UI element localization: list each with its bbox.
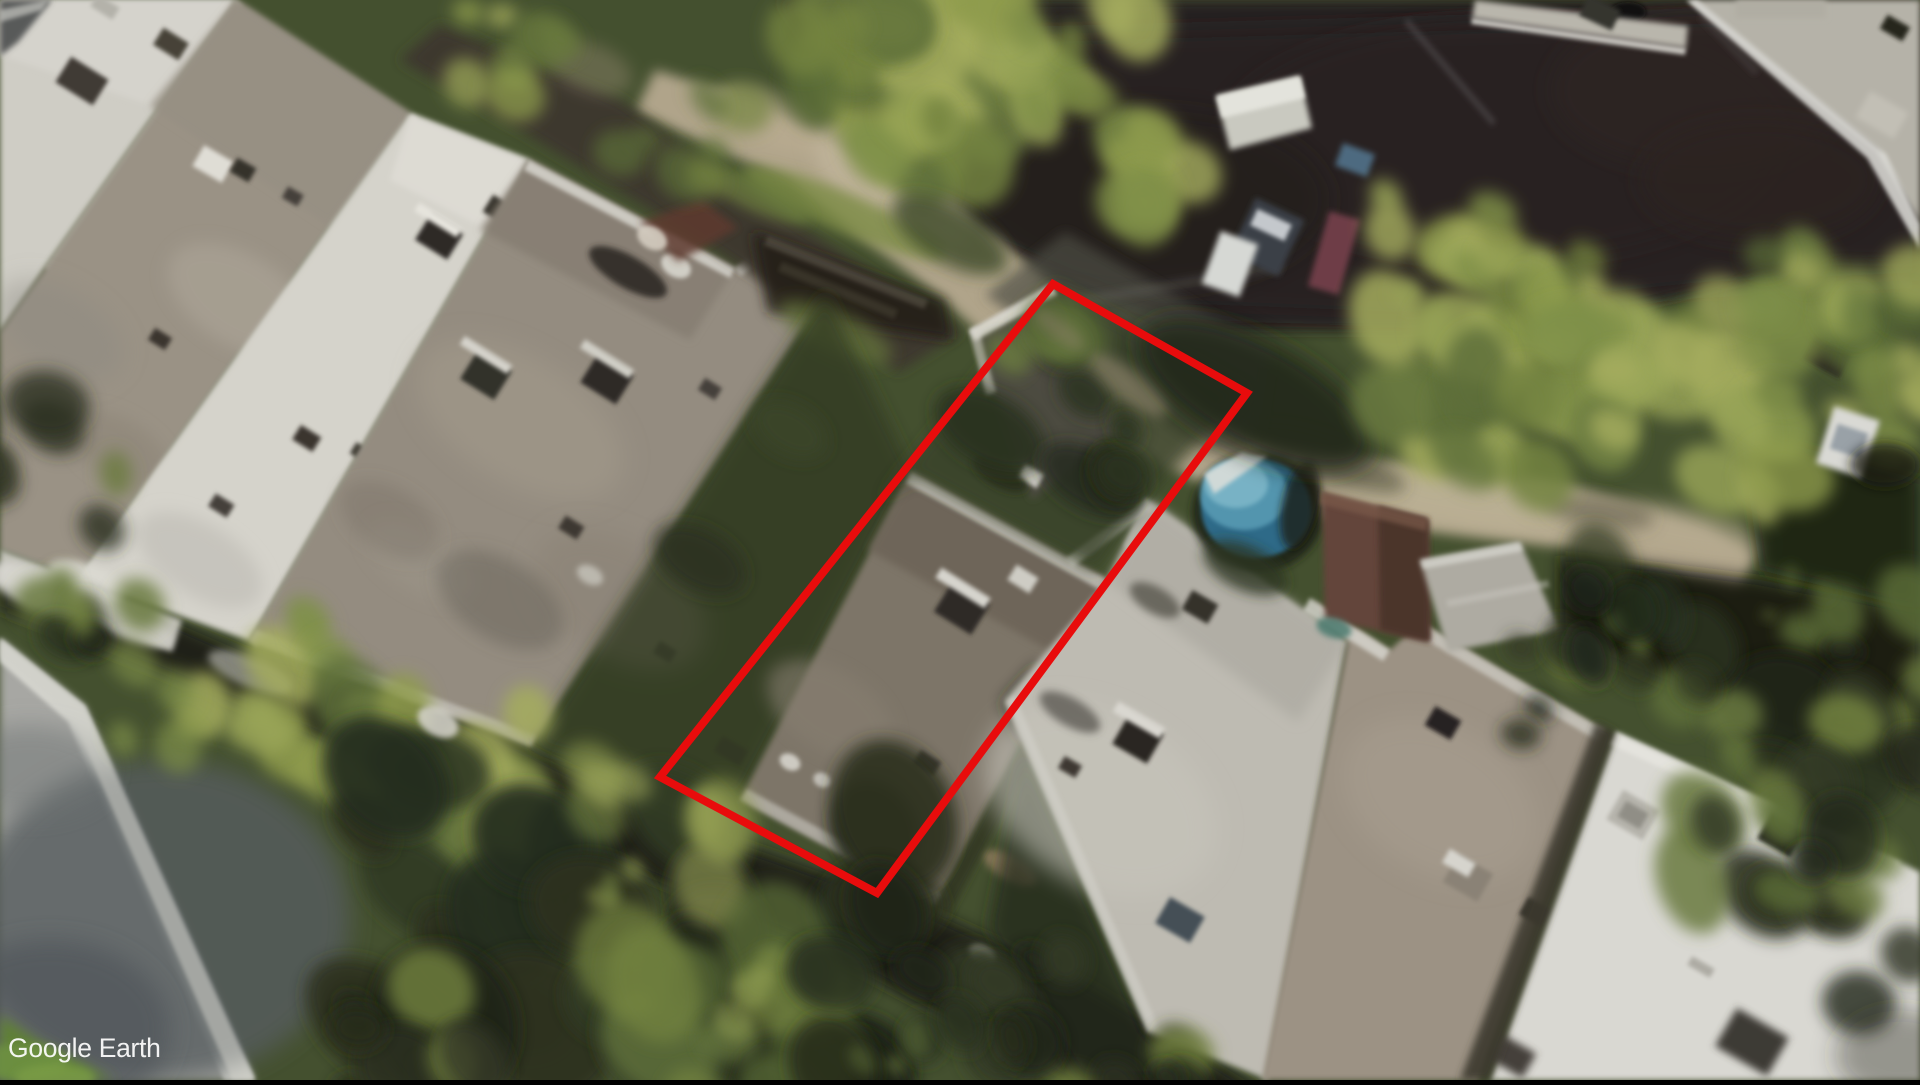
- svg-text:Google Earth: Google Earth: [8, 1033, 161, 1063]
